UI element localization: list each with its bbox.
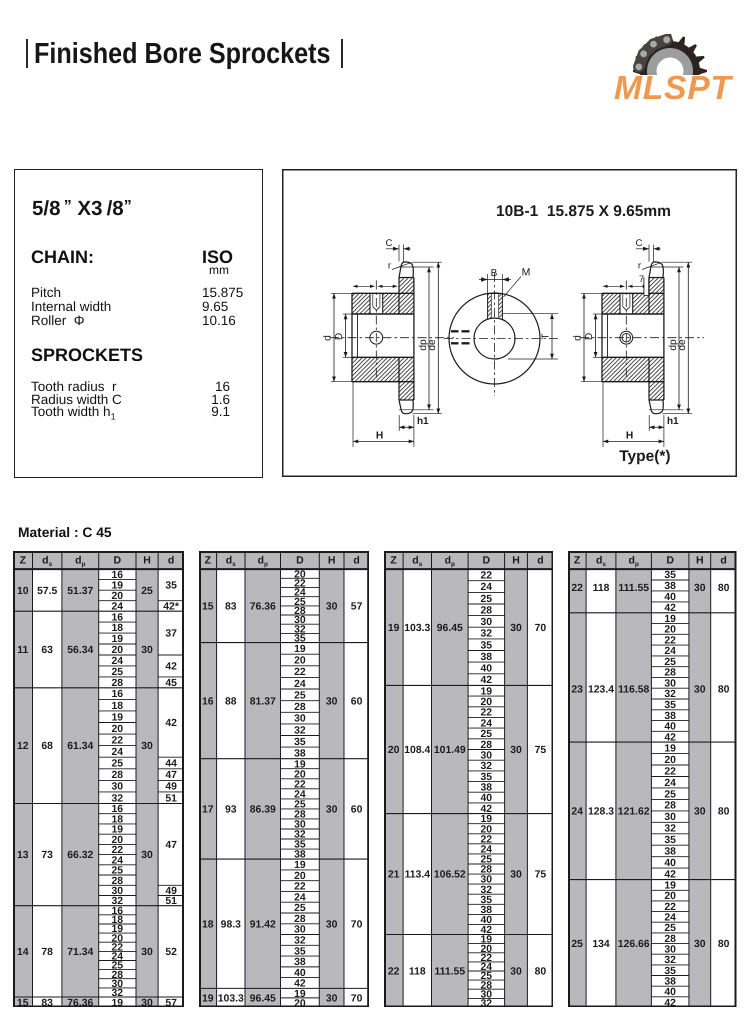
svg-text:H: H: [143, 554, 151, 566]
svg-text:20: 20: [388, 745, 400, 756]
svg-text:17: 17: [202, 804, 214, 815]
svg-text:91.42: 91.42: [249, 919, 275, 930]
svg-text:d: d: [537, 554, 543, 566]
svg-text:20: 20: [294, 870, 306, 881]
svg-text:19: 19: [294, 644, 306, 655]
svg-text:30: 30: [510, 745, 522, 756]
svg-text:111.55: 111.55: [434, 966, 465, 977]
svg-text:70: 70: [350, 993, 362, 1004]
svg-text:Z: Z: [204, 554, 211, 566]
svg-text:30: 30: [694, 806, 706, 817]
svg-text:18: 18: [112, 700, 124, 711]
svg-text:32: 32: [664, 823, 676, 834]
svg-text:19: 19: [664, 613, 676, 624]
svg-text:44: 44: [165, 758, 177, 769]
svg-text:Z: Z: [390, 554, 397, 566]
svg-text:30: 30: [694, 939, 706, 950]
svg-text:C: C: [386, 238, 393, 249]
svg-text:83: 83: [225, 601, 237, 612]
svg-text:25: 25: [664, 789, 676, 800]
svg-text:16: 16: [112, 689, 124, 700]
svg-text:101.49: 101.49: [434, 745, 466, 756]
svg-text:80: 80: [718, 583, 730, 594]
svg-text:86.39: 86.39: [249, 804, 275, 815]
svg-text:28: 28: [664, 933, 676, 944]
svg-text:42: 42: [480, 675, 492, 686]
svg-text:40: 40: [664, 592, 676, 603]
svg-text:35: 35: [480, 771, 492, 782]
svg-text:d: d: [353, 554, 359, 566]
svg-text:42: 42: [664, 869, 676, 880]
svg-text:19: 19: [388, 622, 400, 633]
svg-text:30: 30: [510, 966, 522, 977]
svg-text:38: 38: [664, 710, 676, 721]
svg-text:61.34: 61.34: [67, 741, 93, 752]
svg-text:134: 134: [592, 939, 610, 950]
svg-text:80: 80: [718, 939, 730, 950]
svg-text:30: 30: [325, 919, 337, 930]
svg-text:25: 25: [112, 667, 124, 678]
svg-text:75: 75: [534, 745, 546, 756]
svg-text:40: 40: [294, 967, 306, 978]
svg-text:35: 35: [294, 736, 306, 747]
svg-text:Type(*): Type(*): [619, 448, 670, 465]
svg-text:42: 42: [165, 661, 177, 672]
svg-text:d: d: [720, 554, 726, 566]
svg-text:25: 25: [571, 939, 583, 950]
svg-text:32: 32: [664, 955, 676, 966]
svg-text:28: 28: [112, 770, 124, 781]
svg-text:35: 35: [664, 570, 676, 581]
svg-text:80: 80: [718, 806, 730, 817]
svg-text:24: 24: [112, 747, 124, 758]
svg-text:123.4: 123.4: [588, 684, 614, 695]
svg-text:118: 118: [409, 966, 426, 977]
svg-text:30: 30: [294, 713, 306, 724]
svg-text:25: 25: [294, 690, 306, 701]
svg-text:11: 11: [17, 645, 28, 656]
svg-text:75: 75: [534, 869, 546, 880]
svg-text:28: 28: [480, 605, 492, 616]
svg-text:28: 28: [294, 913, 306, 924]
svg-text:D: D: [482, 554, 490, 566]
svg-text:30: 30: [325, 696, 337, 707]
svg-text:24: 24: [294, 678, 306, 689]
svg-text:32: 32: [664, 689, 676, 700]
svg-text:38: 38: [480, 651, 492, 662]
svg-text:52: 52: [165, 947, 177, 958]
svg-text:22: 22: [112, 735, 124, 746]
svg-text:16: 16: [202, 696, 214, 707]
svg-text:108.4: 108.4: [404, 745, 430, 756]
svg-text:24: 24: [294, 892, 306, 903]
svg-text:38: 38: [664, 581, 676, 592]
svg-text:22: 22: [664, 901, 676, 912]
svg-text:37: 37: [165, 628, 177, 639]
svg-text:80: 80: [718, 684, 730, 695]
svg-text:49: 49: [165, 781, 177, 792]
svg-text:128.3: 128.3: [588, 806, 614, 817]
svg-text:24: 24: [664, 646, 676, 657]
svg-text:88: 88: [225, 696, 237, 707]
svg-text:103.3: 103.3: [217, 993, 243, 1004]
svg-text:57.5: 57.5: [37, 585, 57, 596]
svg-text:106.52: 106.52: [434, 869, 466, 880]
svg-text:H: H: [512, 554, 520, 566]
svg-text:28: 28: [294, 702, 306, 713]
svg-text:30: 30: [510, 622, 522, 633]
svg-text:71.34: 71.34: [67, 947, 93, 958]
svg-text:25: 25: [112, 758, 124, 769]
svg-text:30: 30: [325, 601, 337, 612]
svg-text:19: 19: [202, 993, 214, 1004]
svg-text:40: 40: [480, 663, 492, 674]
svg-text:96.45: 96.45: [436, 622, 462, 633]
svg-text:80: 80: [534, 966, 546, 977]
svg-text:25: 25: [294, 903, 306, 914]
svg-text:25: 25: [141, 585, 153, 596]
svg-text:D: D: [296, 554, 304, 566]
svg-text:40: 40: [664, 721, 676, 732]
svg-text:20: 20: [294, 655, 306, 666]
svg-text:81.37: 81.37: [249, 696, 275, 707]
svg-text:38: 38: [294, 748, 306, 759]
svg-text:42: 42: [165, 718, 177, 729]
svg-text:Z: Z: [20, 554, 27, 566]
svg-text:20: 20: [664, 754, 676, 765]
svg-text:30: 30: [325, 804, 337, 815]
svg-text:73: 73: [41, 850, 53, 861]
svg-text:30: 30: [510, 869, 522, 880]
svg-text:19: 19: [480, 686, 492, 697]
svg-text:30: 30: [141, 741, 153, 752]
svg-text:23: 23: [571, 684, 583, 695]
svg-text:13: 13: [17, 850, 29, 861]
svg-text:60: 60: [350, 696, 362, 707]
svg-text:40: 40: [664, 858, 676, 869]
svg-text:35: 35: [165, 580, 177, 591]
svg-text:14: 14: [17, 947, 29, 958]
svg-text:60: 60: [350, 804, 362, 815]
svg-text:D: D: [334, 332, 345, 339]
svg-text:30: 30: [141, 947, 153, 958]
svg-text:19: 19: [664, 743, 676, 754]
svg-text:57: 57: [350, 601, 362, 612]
svg-text:21: 21: [388, 869, 400, 880]
svg-text:103.3: 103.3: [404, 622, 430, 633]
svg-text:70: 70: [350, 919, 362, 930]
svg-text:35: 35: [294, 946, 306, 957]
svg-text:d: d: [168, 554, 174, 566]
svg-text:32: 32: [480, 761, 492, 772]
svg-text:20: 20: [112, 645, 124, 656]
svg-text:63: 63: [41, 645, 53, 656]
svg-text:16: 16: [112, 612, 124, 623]
svg-text:93: 93: [225, 804, 237, 815]
svg-text:H: H: [696, 554, 704, 566]
svg-text:68: 68: [41, 741, 53, 752]
svg-text:24: 24: [664, 777, 676, 788]
svg-text:22: 22: [294, 667, 306, 678]
svg-text:10: 10: [17, 585, 29, 596]
svg-text:30: 30: [694, 684, 706, 695]
svg-text:22: 22: [664, 635, 676, 646]
svg-text:66.32: 66.32: [67, 850, 93, 861]
svg-text:32: 32: [112, 793, 124, 804]
svg-text:126.66: 126.66: [618, 939, 650, 950]
svg-text:MLSPT: MLSPT: [614, 70, 734, 107]
svg-text:24: 24: [480, 582, 492, 593]
svg-text:30: 30: [112, 781, 124, 792]
svg-text:24: 24: [112, 656, 124, 667]
svg-text:121.62: 121.62: [618, 806, 650, 817]
svg-text:76.36: 76.36: [249, 601, 275, 612]
svg-text:19: 19: [112, 634, 124, 645]
svg-text:30: 30: [141, 850, 153, 861]
svg-text:30: 30: [694, 583, 706, 594]
svg-text:96.45: 96.45: [249, 993, 275, 1004]
svg-text:30: 30: [664, 812, 676, 823]
svg-text:15: 15: [202, 601, 214, 612]
svg-text:111.55: 111.55: [618, 583, 649, 594]
svg-text:51: 51: [165, 793, 177, 804]
svg-text:47: 47: [165, 770, 177, 781]
svg-text:70: 70: [534, 622, 546, 633]
svg-text:D: D: [114, 554, 122, 566]
svg-text:51.37: 51.37: [67, 585, 93, 596]
svg-text:Z: Z: [574, 554, 581, 566]
svg-text:22: 22: [664, 766, 676, 777]
svg-text:18: 18: [202, 919, 214, 930]
svg-text:M: M: [522, 266, 531, 278]
svg-text:32: 32: [294, 725, 306, 736]
svg-text:24: 24: [571, 806, 583, 817]
svg-text:h1: h1: [417, 416, 429, 427]
svg-text:28: 28: [664, 800, 676, 811]
svg-text:12: 12: [17, 741, 29, 752]
svg-text:18: 18: [112, 623, 124, 634]
svg-text:7: 7: [639, 274, 644, 285]
svg-text:47: 47: [165, 840, 177, 851]
svg-text:32: 32: [480, 628, 492, 639]
svg-text:118: 118: [593, 583, 610, 594]
svg-text:H: H: [327, 554, 335, 566]
svg-text:d: d: [323, 334, 334, 340]
svg-text:de: de: [427, 339, 438, 351]
svg-text:25: 25: [480, 593, 492, 604]
svg-text:98.3: 98.3: [220, 919, 240, 930]
svg-text:D: D: [666, 554, 674, 566]
svg-text:30: 30: [141, 645, 153, 656]
svg-text:56.34: 56.34: [67, 645, 93, 656]
svg-text:19: 19: [112, 712, 124, 723]
svg-text:10B-1 15.875 X 9.65mm: 10B-1 15.875 X 9.65mm: [496, 203, 671, 220]
svg-text:H: H: [376, 430, 383, 441]
svg-text:35: 35: [664, 835, 676, 846]
svg-text:113.4: 113.4: [404, 869, 430, 880]
svg-text:35: 35: [480, 640, 492, 651]
svg-text:30: 30: [325, 993, 337, 1004]
svg-text:22: 22: [388, 966, 400, 977]
svg-text:22: 22: [480, 570, 492, 581]
svg-text:30: 30: [480, 617, 492, 628]
svg-text:38: 38: [664, 846, 676, 857]
svg-text:35: 35: [664, 700, 676, 711]
svg-text:20: 20: [112, 723, 124, 734]
svg-text:22: 22: [571, 583, 583, 594]
svg-text:78: 78: [41, 947, 53, 958]
svg-text:116.58: 116.58: [618, 684, 649, 695]
svg-text:20: 20: [480, 697, 492, 708]
